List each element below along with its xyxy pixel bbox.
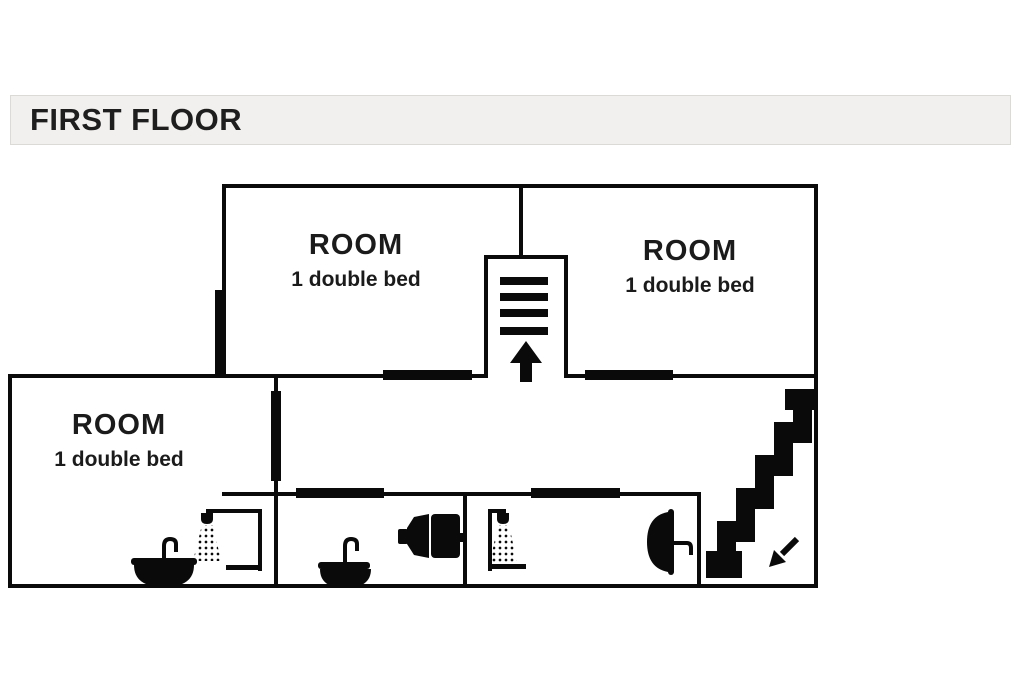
stairs-up-icon: [500, 277, 548, 335]
door-bars: [215, 290, 673, 498]
room-beds: 1 double bed: [580, 274, 800, 298]
arrow-down-left-icon: [769, 539, 797, 567]
room-label-bottom-left: ROOM 1 double bed: [9, 409, 229, 472]
shower-icon: [193, 509, 262, 571]
stairs-down-icon: [706, 389, 815, 578]
toilet-icon: [398, 514, 465, 558]
arrow-up-icon: [510, 341, 542, 382]
sink-icon: [131, 539, 197, 587]
room-name: ROOM: [246, 229, 466, 261]
room-label-top-left: ROOM 1 double bed: [246, 229, 466, 292]
sink-icon: [647, 509, 691, 575]
room-name: ROOM: [580, 235, 800, 267]
room-beds: 1 double bed: [246, 268, 466, 292]
room-name: ROOM: [9, 409, 229, 441]
sink-icon: [318, 539, 371, 588]
room-beds: 1 double bed: [9, 448, 229, 472]
room-label-top-right: ROOM 1 double bed: [580, 235, 800, 298]
page: FIRST FLOOR: [0, 0, 1024, 683]
floor-plan: [0, 0, 1024, 683]
shower-icon: [488, 509, 526, 571]
